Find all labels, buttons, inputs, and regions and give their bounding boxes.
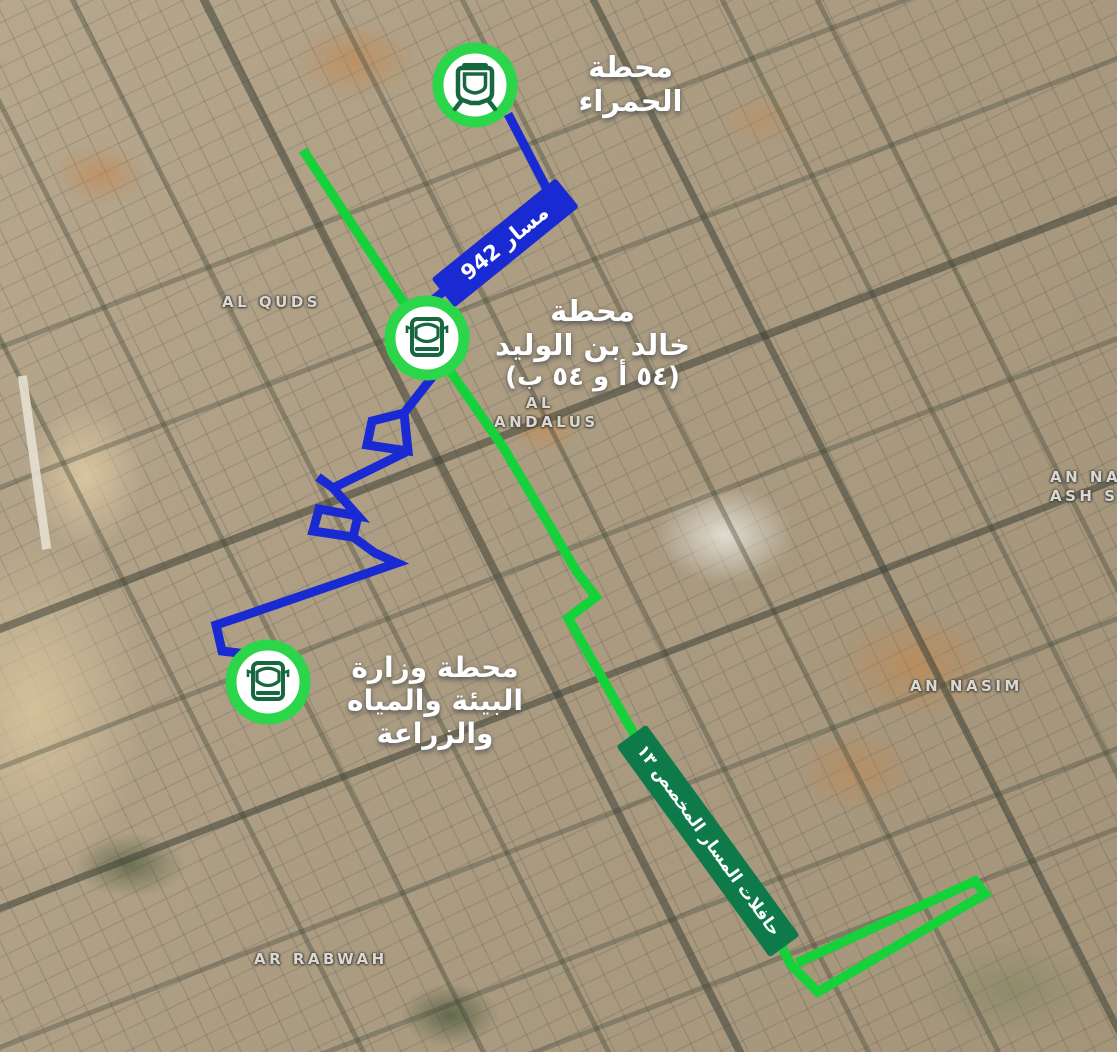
station-label-line: خالد بن الوليد xyxy=(470,328,715,362)
station-label-al-hamra: محطة الحمراء xyxy=(558,50,703,118)
station-label-line: محطة وزارة xyxy=(346,651,524,684)
route-13-line xyxy=(303,150,985,992)
station-label-line: محطة xyxy=(558,50,703,84)
station-marker-al-hamra[interactable] xyxy=(438,48,512,122)
station-ring xyxy=(438,48,512,122)
station-label-line: محطة xyxy=(470,294,715,328)
station-label-line: (٥٤ أ و ٥٤ ب) xyxy=(470,362,715,393)
station-marker-khalid-bin-al-waleed[interactable] xyxy=(390,301,464,375)
station-ring xyxy=(231,645,305,719)
routes-overlay xyxy=(0,0,1117,1052)
station-label-line: الحمراء xyxy=(558,84,703,118)
station-marker-mewa[interactable] xyxy=(231,645,305,719)
route-942-line xyxy=(216,114,554,677)
station-label-line: البيئة والمياه xyxy=(346,684,524,717)
map-canvas: AL QUDS AL ANDALUS AN NAS ASH SHA AN NAS… xyxy=(0,0,1117,1052)
station-label-line: والزراعة xyxy=(346,717,524,750)
station-label-mewa: محطة وزارة البيئة والمياه والزراعة xyxy=(346,651,524,750)
station-label-khalid-bin-al-waleed: محطة خالد بن الوليد (٥٤ أ و ٥٤ ب) xyxy=(470,294,715,393)
station-ring xyxy=(390,301,464,375)
